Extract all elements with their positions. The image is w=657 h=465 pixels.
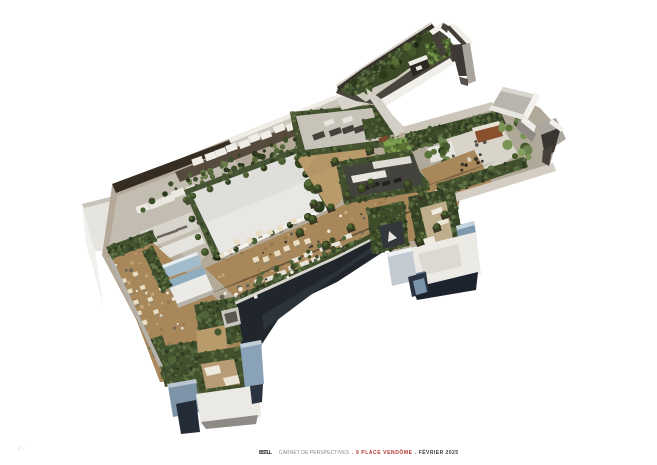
svg-text:BSTLL: BSTLL	[259, 450, 272, 456]
svg-text:. FÉVRIER 2025: . FÉVRIER 2025	[415, 448, 458, 456]
svg-text:2 /: 2 /	[18, 446, 25, 452]
svg-text:. CARNET DE PERSPECTIVES: . CARNET DE PERSPECTIVES	[276, 450, 350, 456]
svg-text:. 9 PLACE VENDÔME: . 9 PLACE VENDÔME	[352, 448, 413, 456]
